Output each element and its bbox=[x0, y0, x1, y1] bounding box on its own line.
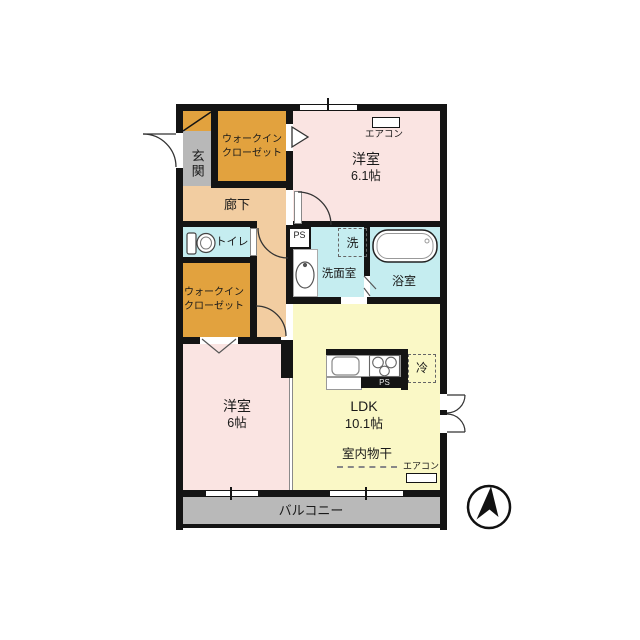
corridor-door-arc bbox=[256, 306, 286, 336]
label-bedroom-left-size: 6帖 bbox=[197, 416, 277, 431]
label-ldk-name: LDK bbox=[324, 398, 404, 415]
bathtub-icon bbox=[373, 230, 437, 262]
toilet-door-arc bbox=[258, 228, 288, 258]
label-toilet: トイレ bbox=[209, 236, 255, 249]
label-bedroom-top-size: 6.1帖 bbox=[326, 169, 406, 184]
doorway-chevron bbox=[292, 127, 308, 147]
label-aircon-top: エアコン bbox=[356, 129, 412, 140]
drying-dashed-line bbox=[337, 466, 397, 468]
label-indoor-drying: 室内物干 bbox=[334, 447, 400, 462]
shoe-cabinet-diagonal bbox=[183, 112, 211, 131]
label-ps-top: PS bbox=[288, 230, 311, 241]
label-hallway: 廊下 bbox=[207, 197, 267, 213]
label-ldk-size: 10.1帖 bbox=[324, 416, 404, 432]
bedroom-top-door-arc bbox=[298, 192, 331, 225]
vector-layer bbox=[0, 0, 640, 640]
label-bedroom-left-name: 洋室 bbox=[197, 398, 277, 415]
entrance-door-arc bbox=[143, 134, 176, 167]
exterior-door-arcs bbox=[447, 395, 465, 432]
label-bedroom-top-name: 洋室 bbox=[326, 151, 406, 168]
label-bath: 浴室 bbox=[382, 274, 426, 288]
label-genkan: 玄関 bbox=[189, 141, 205, 187]
label-aircon-bottom: エアコン bbox=[397, 461, 445, 472]
compass-icon bbox=[468, 486, 510, 528]
label-ps-kitchen: PS bbox=[361, 378, 408, 388]
label-washer: 洗 bbox=[338, 236, 367, 250]
label-washroom: 洗面室 bbox=[311, 268, 367, 282]
label-wic-top: ウォークイン クローゼット bbox=[214, 133, 290, 160]
label-wic-left: ウォークイン クローゼット bbox=[181, 286, 247, 313]
floorplan-canvas: 玄関 ウォークイン クローゼット ウォークイン クローゼット 洋室 6.1帖 廊… bbox=[0, 0, 640, 640]
folding-door-v bbox=[202, 339, 236, 353]
stove-icon bbox=[370, 356, 400, 377]
label-balcony: バルコニー bbox=[269, 503, 353, 519]
kitchen-sink-icon bbox=[332, 357, 359, 375]
label-fridge: 冷 bbox=[408, 361, 436, 375]
